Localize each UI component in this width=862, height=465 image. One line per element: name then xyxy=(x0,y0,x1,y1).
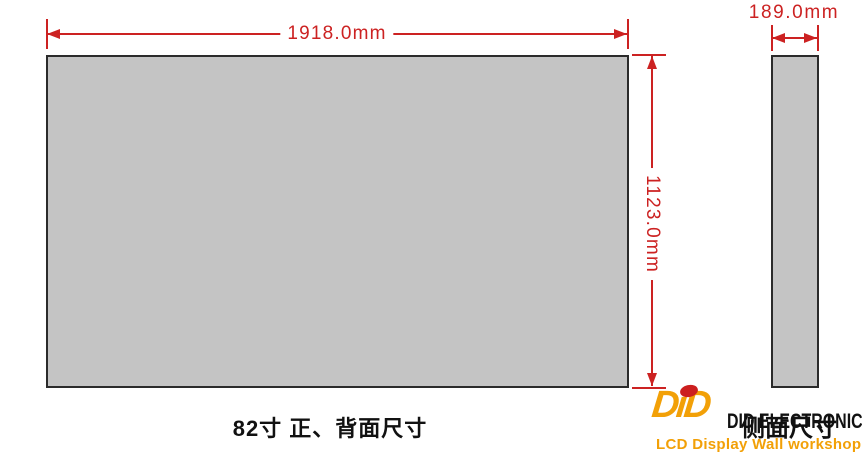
front-view-caption: 82寸 正、背面尺寸 xyxy=(233,411,428,443)
right-arrowhead-icon xyxy=(804,33,817,43)
did-logo-mark: DiD xyxy=(652,386,732,438)
panel-dimension-diagram: 1918.0mm 1123.0mm 189.0mm 82寸 正、背面尺寸 侧面尺… xyxy=(0,0,862,465)
right-arrowhead-icon xyxy=(614,29,627,39)
front-panel-rect xyxy=(46,55,629,388)
up-arrowhead-icon xyxy=(647,56,657,69)
side-panel-rect xyxy=(771,55,819,388)
extension-line-right xyxy=(627,19,629,49)
left-arrowhead-icon xyxy=(47,29,60,39)
left-arrowhead-icon xyxy=(772,33,785,43)
side-width-label: 189.0mm xyxy=(742,2,846,24)
side-view-caption: 侧面尺寸 xyxy=(741,408,837,443)
front-width-label: 1918.0mm xyxy=(280,23,393,45)
front-height-label: 1123.0mm xyxy=(641,168,663,280)
extension-line-right xyxy=(817,25,819,51)
